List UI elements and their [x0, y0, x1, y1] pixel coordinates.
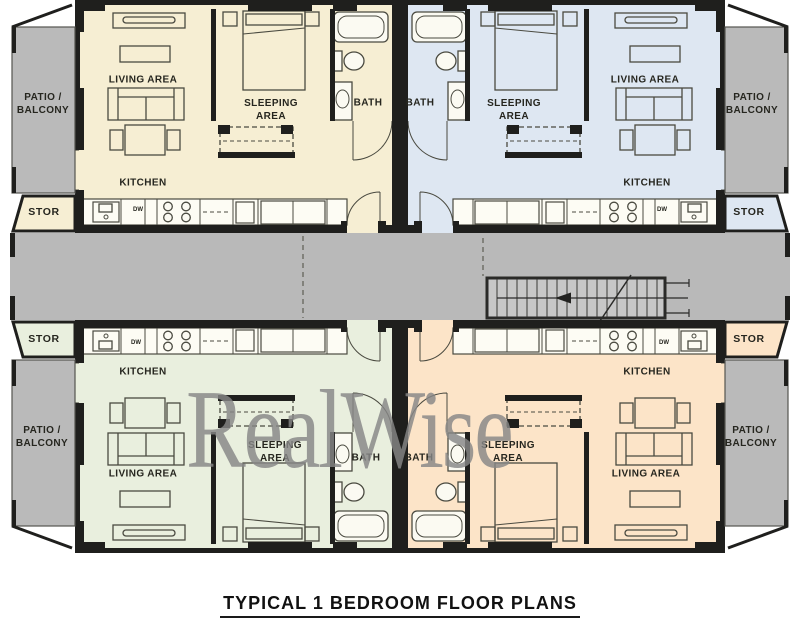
label-living-bottom-left: LIVING AREA [109, 468, 177, 481]
staircase [487, 275, 689, 321]
label-patio-bottom-right: PATIO / BALCONY [725, 424, 777, 450]
label-kitchen-bottom-right: KITCHEN [623, 366, 670, 379]
plan-title: TYPICAL 1 BEDROOM FLOOR PLANS [220, 593, 580, 618]
label-dw-bottom-right: DW [659, 340, 669, 348]
unit-top-right [400, 0, 761, 233]
unit-bottom-left [39, 320, 400, 553]
label-sleeping-top-left: SLEEPING AREA [244, 97, 298, 123]
label-kitchen-top-right: KITCHEN [623, 177, 670, 190]
label-sleeping-bottom-left: SLEEPING AREA [248, 439, 302, 465]
label-dw-top-right: DW [657, 207, 667, 215]
label-patio-top-left: PATIO / BALCONY [17, 91, 69, 117]
plan-title-row: TYPICAL 1 BEDROOM FLOOR PLANS [0, 593, 800, 618]
patio-bottom-left [12, 360, 75, 548]
label-stor-bottom-right: STOR [733, 333, 764, 347]
unit-bottom-right [400, 320, 761, 553]
label-living-top-left: LIVING AREA [109, 74, 177, 87]
unit-top-left [39, 0, 400, 233]
label-living-top-right: LIVING AREA [611, 74, 679, 87]
label-stor-top-right: STOR [733, 206, 764, 220]
label-kitchen-bottom-left: KITCHEN [119, 366, 166, 379]
label-dw-bottom-left: DW [131, 340, 141, 348]
label-sleeping-top-right: SLEEPING AREA [487, 97, 541, 123]
label-bath-top-right: BATH [406, 97, 435, 110]
label-sleeping-bottom-right: SLEEPING AREA [481, 439, 535, 465]
label-stor-bottom-left: STOR [28, 333, 59, 347]
label-bath-bottom-left: BATH [352, 452, 381, 465]
label-kitchen-top-left: KITCHEN [119, 177, 166, 190]
label-patio-top-right: PATIO / BALCONY [726, 91, 778, 117]
label-bath-bottom-right: BATH [405, 452, 434, 465]
label-living-bottom-right: LIVING AREA [612, 468, 680, 481]
corridor-floor [10, 233, 790, 320]
label-patio-bottom-left: PATIO / BALCONY [16, 424, 68, 450]
patio-bottom-right [725, 360, 788, 548]
label-dw-top-left: DW [133, 207, 143, 215]
label-bath-top-left: BATH [354, 97, 383, 110]
floor-plan-canvas: LIVING AREA SLEEPING AREA BATH KITCHEN D… [0, 0, 800, 633]
floor-plan-drawing [0, 0, 800, 633]
label-stor-top-left: STOR [28, 206, 59, 220]
